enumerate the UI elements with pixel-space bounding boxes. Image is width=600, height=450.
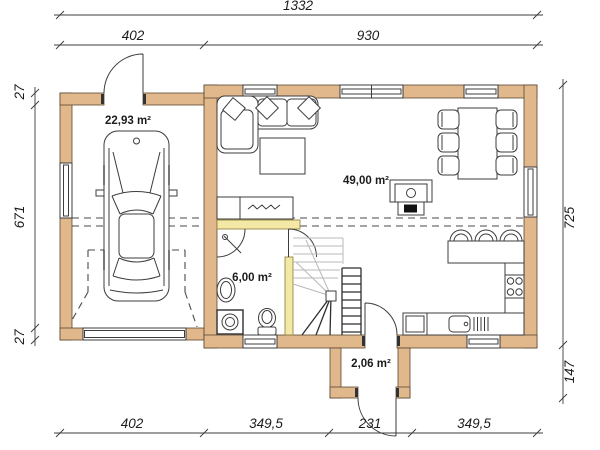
floor-plan: 1332 402 930 27 671 27 725 147 402 349,5…	[0, 0, 600, 450]
fireplace-stove	[390, 180, 432, 215]
entry-area-label: 2,06 m²	[351, 358, 391, 370]
dim-left-wall-bottom: 27	[12, 329, 27, 346]
window-bathroom	[243, 335, 277, 348]
garage-side-door	[101, 54, 146, 104]
window-garage	[60, 163, 72, 218]
dim-left-wall-top: 27	[12, 84, 27, 101]
bar-counter	[448, 241, 524, 263]
floor-plan-drawing: 1332 402 930 27 671 27 725 147 402 349,5…	[0, 0, 600, 450]
dim-left-height: 671	[12, 206, 27, 229]
window-dining	[464, 85, 498, 98]
stove	[505, 275, 524, 298]
bar-stools	[450, 230, 522, 241]
living-area-label: 49,00 m²	[343, 175, 389, 187]
dim-house-width: 930	[357, 28, 380, 43]
dim-garage-width: 402	[122, 28, 145, 43]
dim-right-height: 725	[562, 206, 577, 229]
toilet	[258, 309, 276, 336]
window-kitchen	[467, 335, 500, 348]
coffee-table	[260, 138, 305, 174]
dim-bottom-garage: 402	[121, 416, 144, 431]
hall-door	[362, 303, 400, 346]
staircase	[293, 238, 361, 335]
shower	[217, 229, 245, 257]
car	[96, 131, 177, 301]
garage-vehicle-door	[83, 328, 186, 340]
dining-table	[458, 108, 497, 179]
window-east	[524, 167, 537, 217]
sideboard	[217, 197, 293, 219]
dim-entry-depth: 147	[562, 360, 577, 383]
bathroom-area-label: 6,00 m²	[232, 272, 272, 284]
dim-bottom-entry: 231	[358, 416, 382, 431]
window-living-center	[340, 85, 403, 98]
bathroom-door	[289, 229, 317, 257]
washing-machine	[217, 310, 243, 334]
garage-area-label: 22,93 m²	[105, 115, 151, 127]
dim-bottom-house-right: 349,5	[457, 416, 491, 431]
dim-total-width: 1332	[283, 0, 314, 13]
dim-bottom-house-left: 349,5	[249, 416, 283, 431]
